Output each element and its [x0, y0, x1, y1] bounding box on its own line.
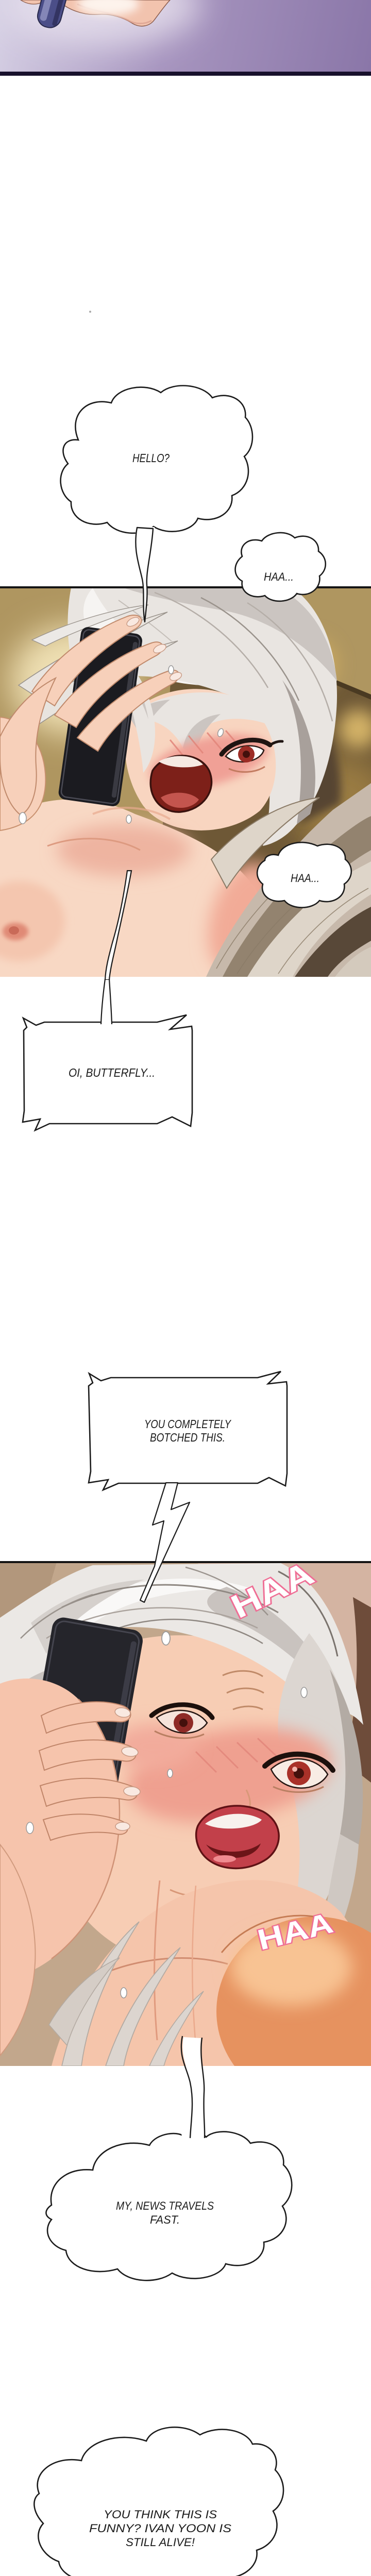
svg-text:HELLO?: HELLO? — [132, 451, 170, 465]
svg-text:FUNNY? IVAN YOON IS: FUNNY? IVAN YOON IS — [89, 2522, 231, 2535]
svg-text:HAA...: HAA... — [291, 872, 319, 885]
svg-text:YOU COMPLETELY: YOU COMPLETELY — [144, 1417, 231, 1431]
svg-text:BOTCHED THIS.: BOTCHED THIS. — [150, 1431, 225, 1444]
svg-text:OI, BUTTERFLY...: OI, BUTTERFLY... — [69, 1066, 155, 1079]
svg-text:MY, NEWS TRAVELS: MY, NEWS TRAVELS — [116, 2199, 214, 2212]
svg-text:YOU THINK THIS IS: YOU THINK THIS IS — [104, 2508, 217, 2521]
svg-text:STILL ALIVE!: STILL ALIVE! — [126, 2536, 195, 2549]
svg-text:FAST.: FAST. — [150, 2213, 180, 2226]
svg-text:HAA...: HAA... — [264, 570, 294, 583]
